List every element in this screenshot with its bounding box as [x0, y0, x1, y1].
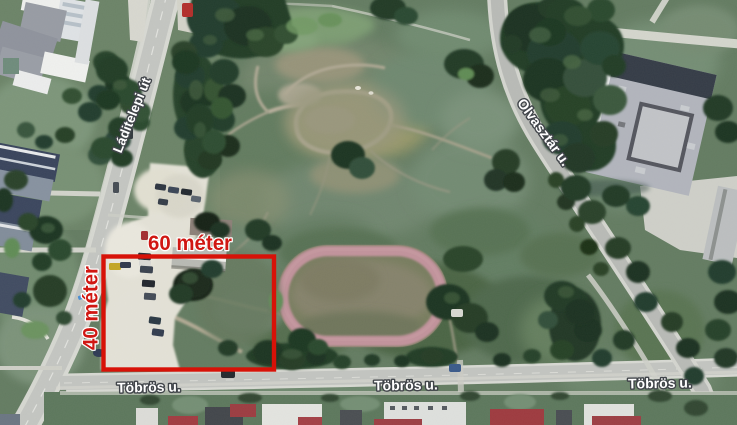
svg-text:40 méter: 40 méter	[79, 265, 103, 350]
svg-text:Töbrös u.: Töbrös u.	[117, 378, 181, 395]
svg-text:Töbrös u.: Töbrös u.	[628, 374, 692, 391]
svg-text:60 méter: 60 méter	[148, 231, 233, 255]
svg-text:Töbrös u.: Töbrös u.	[374, 376, 438, 393]
